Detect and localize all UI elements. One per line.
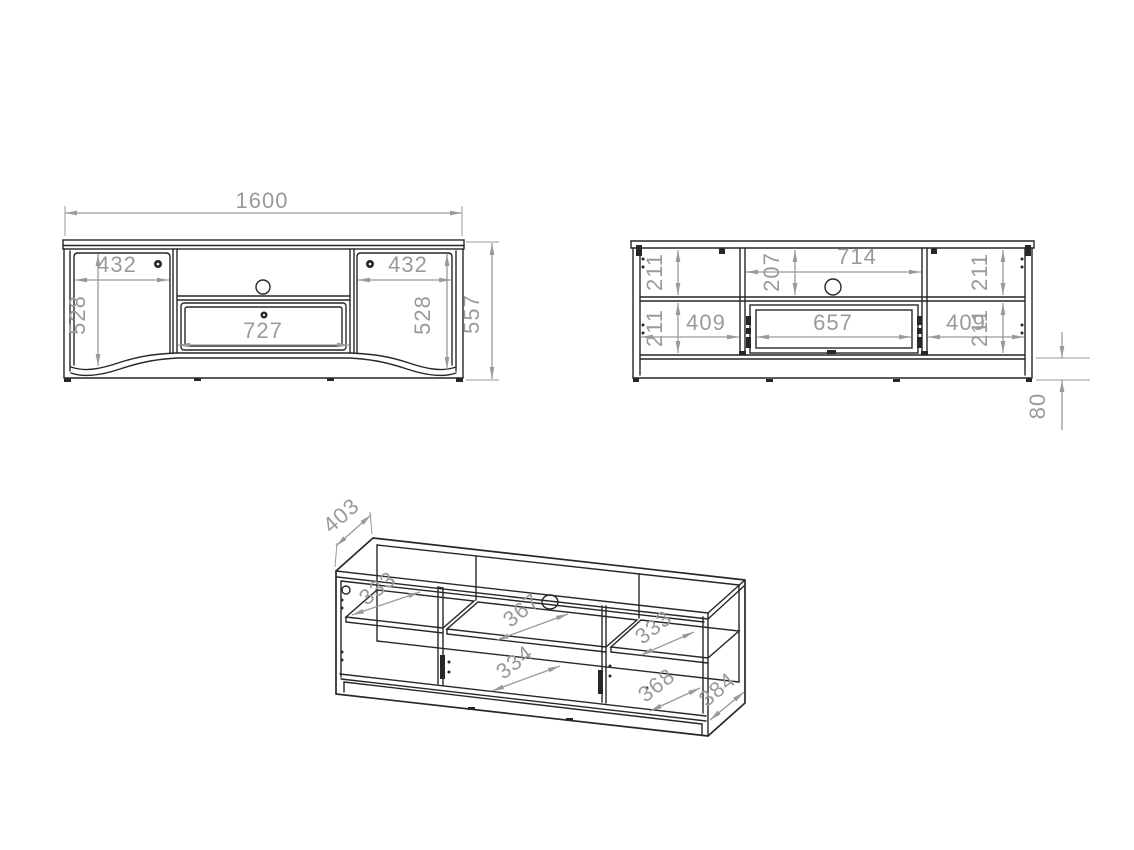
apron-curve-bottom <box>71 358 456 376</box>
foot <box>64 378 71 382</box>
dim-left-door-width: 432 <box>97 252 137 277</box>
dim-right-door-height: 528 <box>410 295 435 335</box>
cable-hole-icon <box>256 280 270 294</box>
dim-left-door-height: 528 <box>65 295 90 335</box>
hinge-cup-hole <box>342 586 350 594</box>
cable-hole-icon <box>825 279 841 295</box>
foot <box>633 378 639 382</box>
dim-overall-height: 557 <box>459 294 484 334</box>
dim-right-top-height: 211 <box>967 253 992 291</box>
dim-right-width: 409 <box>946 310 986 335</box>
isometric-view: 403 333 367 334 333 368 384 <box>318 493 745 736</box>
dim-left-width: 409 <box>686 310 726 335</box>
technical-drawing-canvas: 1600 432 432 528 528 557 727 <box>0 0 1134 850</box>
dim-center-bottom-depth: 334 <box>491 640 538 684</box>
front-closed-dimensions: 1600 432 432 528 528 557 727 <box>65 188 499 380</box>
dim-overall-width: 1600 <box>236 188 289 213</box>
apron-curve-top <box>71 353 456 370</box>
dim-right-door-width: 432 <box>388 252 428 277</box>
dim-left-bottom-height: 211 <box>642 309 667 347</box>
dim-drawer-front-width: 727 <box>243 318 283 343</box>
dim-drawer-box-width: 657 <box>813 310 853 335</box>
drawer-slide <box>746 316 751 325</box>
front-closed-view: 1600 432 432 528 528 557 727 <box>63 188 499 382</box>
shelf-pin-hole <box>341 599 344 602</box>
drawer-slide <box>440 655 445 679</box>
dim-top-depth: 403 <box>318 493 364 538</box>
top-panel <box>63 240 464 249</box>
dim-plinth-height: 80 <box>1025 393 1050 419</box>
dim-center-width: 714 <box>837 244 877 269</box>
dim-side-depth: 384 <box>694 667 740 712</box>
front-open-dimensions: 211 211 409 207 714 657 211 211 409 80 <box>641 244 1090 430</box>
technical-drawing-page: 1600 432 432 528 528 557 727 <box>0 0 1134 850</box>
dim-left-top-height: 211 <box>642 253 667 291</box>
front-open-view: 211 211 409 207 714 657 211 211 409 80 <box>631 241 1090 430</box>
